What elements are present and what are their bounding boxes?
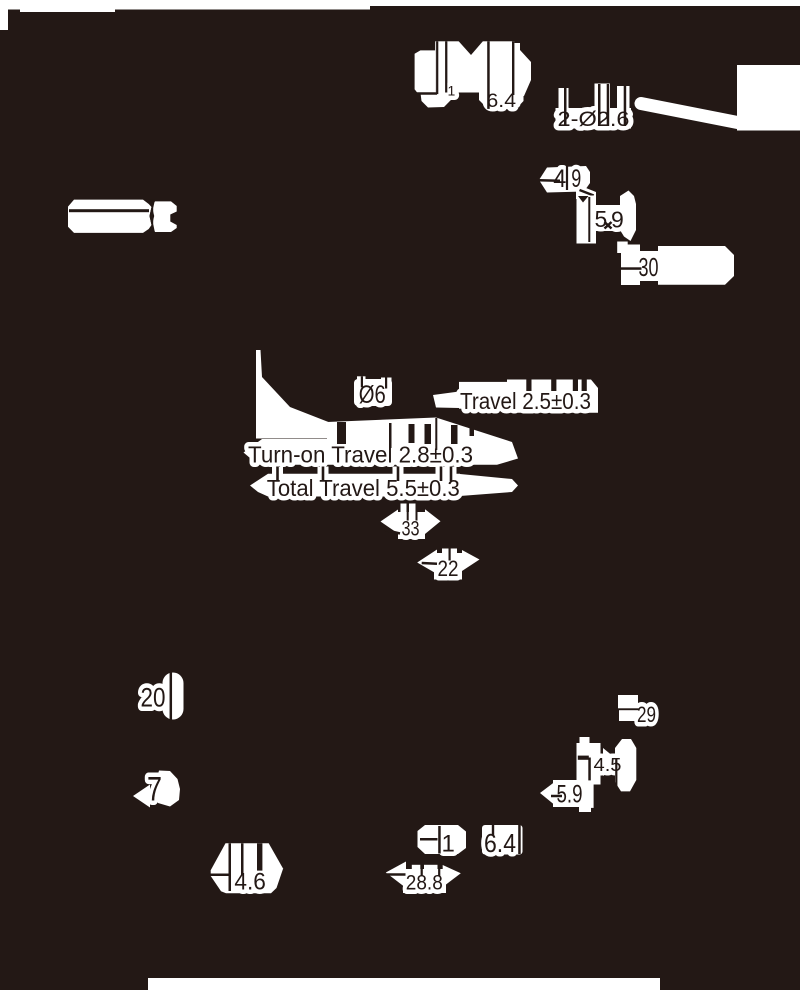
svg-text:4.6: 4.6 xyxy=(234,868,266,895)
svg-text:9: 9 xyxy=(611,207,624,233)
svg-text:30: 30 xyxy=(639,252,659,282)
svg-text:1: 1 xyxy=(442,831,455,858)
svg-text:Total Travel 5.5±0.3: Total Travel 5.5±0.3 xyxy=(267,475,460,501)
svg-text:29: 29 xyxy=(637,702,656,727)
svg-text:Turn-on Travel 2.8±0.3: Turn-on Travel 2.8±0.3 xyxy=(248,442,473,468)
svg-text:5.9: 5.9 xyxy=(557,781,583,809)
svg-text:28.8: 28.8 xyxy=(406,871,443,895)
svg-text:20: 20 xyxy=(141,683,166,713)
svg-text:1: 1 xyxy=(448,83,456,99)
svg-text:6.4: 6.4 xyxy=(487,91,517,112)
svg-text:9: 9 xyxy=(571,165,581,193)
svg-text:33: 33 xyxy=(402,518,420,541)
svg-text:Travel 2.5±0.3: Travel 2.5±0.3 xyxy=(460,388,591,414)
svg-text:22: 22 xyxy=(438,556,459,581)
svg-text:6.4: 6.4 xyxy=(484,828,516,858)
svg-text:7: 7 xyxy=(147,771,162,809)
svg-text:4: 4 xyxy=(553,165,566,193)
svg-text:2-Ø2.6: 2-Ø2.6 xyxy=(558,108,630,131)
